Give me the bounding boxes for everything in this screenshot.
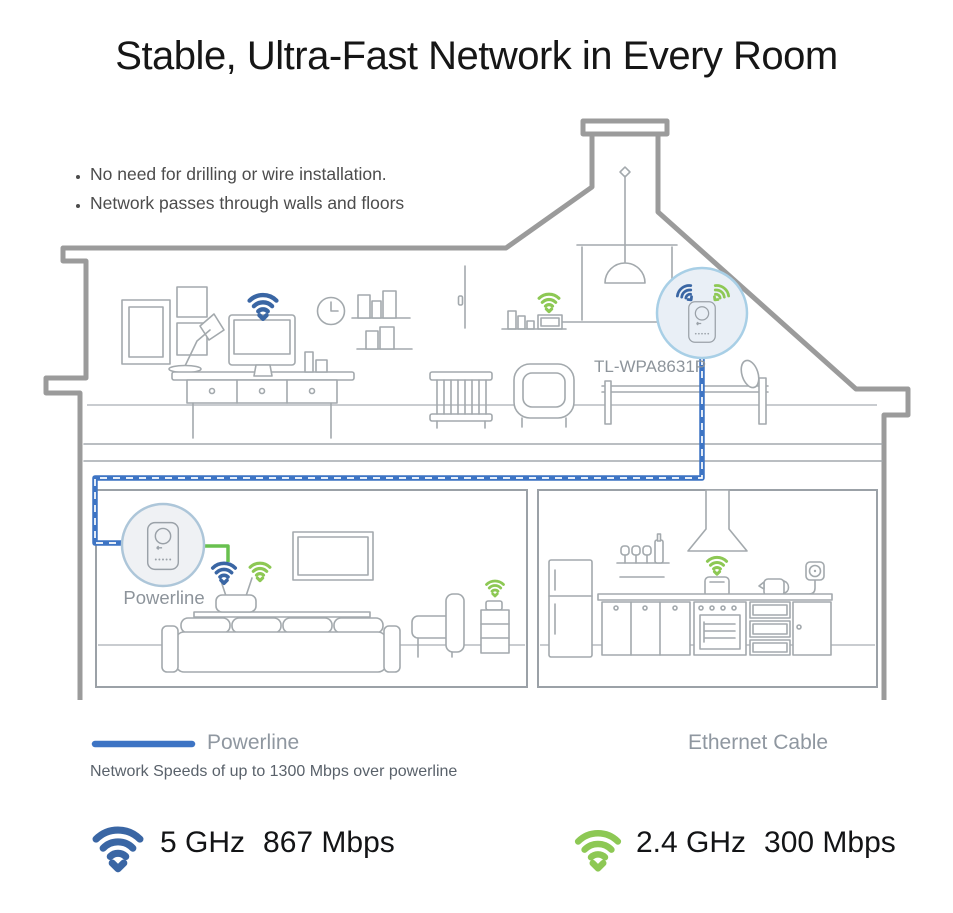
page: { "title": "Stable, Ultra-Fast Network i… [0, 0, 953, 913]
bullet-item: No need for drilling or wire installatio… [90, 160, 404, 189]
band-5ghz: 5 GHz [160, 826, 245, 860]
pen-cup [305, 352, 313, 372]
radiator [430, 372, 492, 428]
ethernet-legend-label: Ethernet Cable [688, 731, 828, 755]
pendant-lamp [605, 263, 645, 283]
speed-24ghz: 2.4 GHz 300 Mbps [636, 826, 896, 860]
tv [293, 532, 373, 580]
band-24ghz: 2.4 GHz [636, 826, 746, 860]
book-shelves [352, 291, 412, 349]
glass [316, 360, 327, 372]
bullet-item: Network passes through walls and floors [90, 189, 404, 218]
wall-clock [318, 298, 345, 325]
rate-5ghz: 867 Mbps [263, 826, 395, 860]
cabinet-doors [602, 602, 690, 655]
door [459, 266, 466, 328]
speed-5ghz: 5 GHz 867 Mbps [160, 826, 395, 860]
tall-cabinet [793, 602, 831, 655]
oven [694, 602, 746, 655]
sofa [162, 618, 400, 672]
powerline-legend-label: Powerline [207, 731, 299, 755]
console-table [194, 612, 370, 617]
attic-armchair [514, 364, 574, 427]
powerline-legend-note: Network Speeds of up to 1300 Mbps over p… [90, 763, 457, 781]
chimney-cap [583, 121, 667, 134]
rate-24ghz: 300 Mbps [764, 826, 896, 860]
picture-frames [122, 287, 207, 364]
wifi-5ghz-large-icon [96, 830, 140, 869]
drawer-stack [750, 602, 790, 655]
extender-callout [657, 268, 747, 358]
countertop [598, 594, 832, 600]
shelf-wifi-icon [539, 294, 559, 311]
media-shelf [502, 311, 566, 329]
page-title: Stable, Ultra-Fast Network in Every Room [0, 34, 953, 79]
wifi-dongle [486, 601, 502, 610]
bottle [655, 540, 663, 563]
adapter-callout [122, 504, 204, 586]
adapter-label: Powerline [120, 587, 208, 609]
feature-bullets: No need for drilling or wire installatio… [72, 160, 404, 218]
fridge [549, 560, 592, 657]
extender-label: TL-WPA8631P [594, 357, 706, 377]
wifi-24ghz-large-icon [578, 833, 618, 868]
monitor [229, 315, 295, 376]
